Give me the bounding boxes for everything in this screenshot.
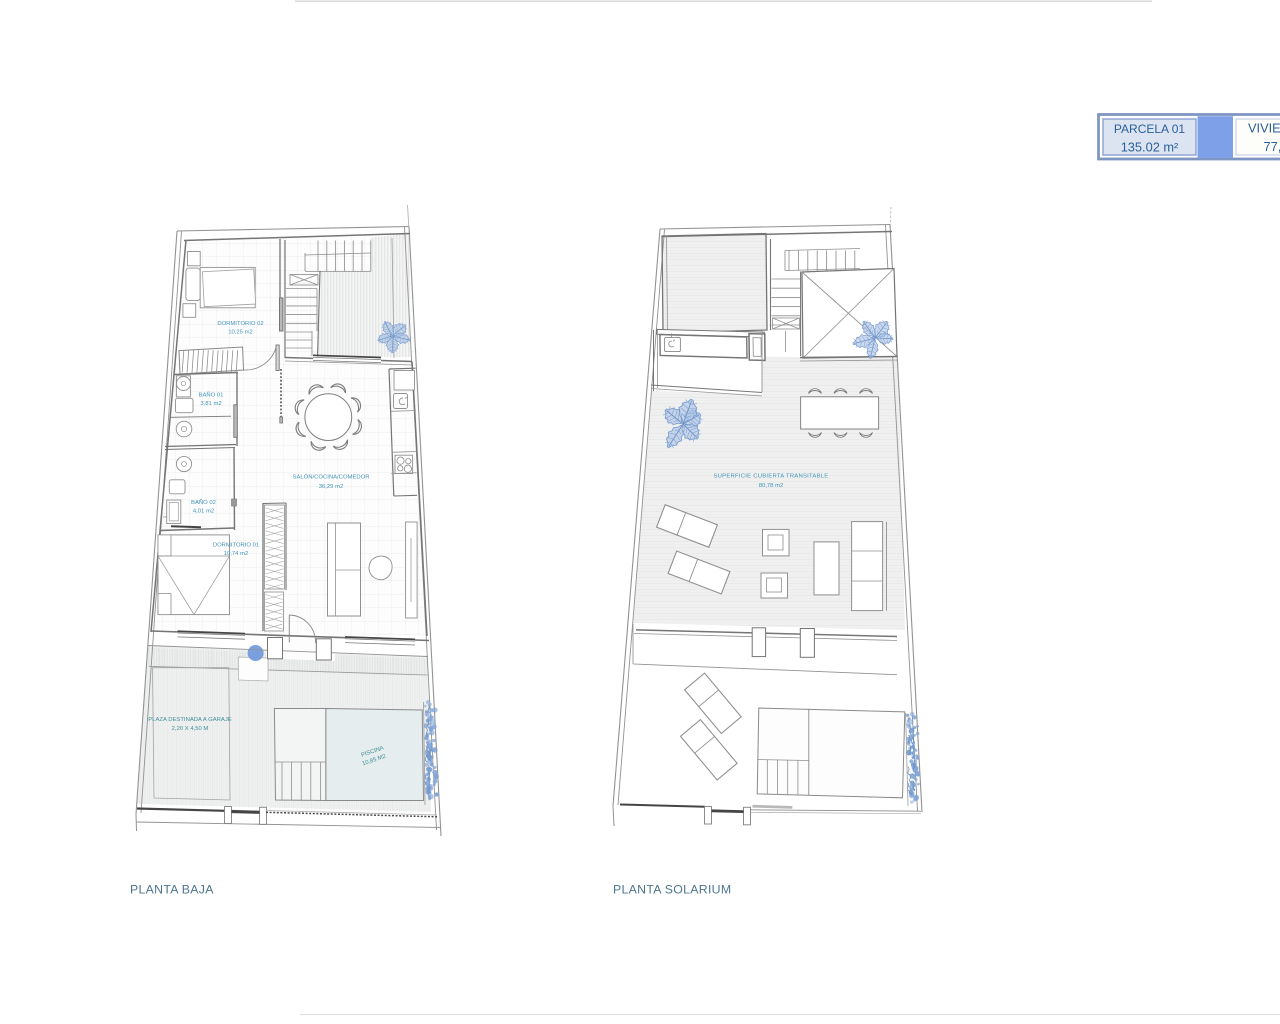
svg-text:PLANTA BAJA: PLANTA BAJA: [130, 883, 214, 897]
svg-text:PARCELA 01: PARCELA 01: [1114, 122, 1185, 136]
svg-text:77,05 m²: 77,05 m²: [1264, 139, 1280, 154]
svg-text:BAÑO 02: BAÑO 02: [191, 499, 216, 506]
svg-text:PLAZA DESTINADA A GARAJE: PLAZA DESTINADA A GARAJE: [148, 717, 232, 723]
svg-text:135.02 m²: 135.02 m²: [1121, 140, 1179, 155]
svg-text:PLANTA SOLARIUM: PLANTA SOLARIUM: [613, 883, 731, 897]
svg-text:DORMITORIO 01: DORMITORIO 01: [213, 543, 259, 549]
svg-text:2,20 X 4,50 M: 2,20 X 4,50 M: [172, 726, 209, 732]
svg-text:3,81 m2: 3,81 m2: [200, 401, 221, 407]
svg-text:DORMITORIO 02: DORMITORIO 02: [217, 321, 263, 327]
svg-text:SALÓN/COCINA/COMEDOR: SALÓN/COCINA/COMEDOR: [293, 474, 370, 481]
svg-text:SUPERFICIE CUBIERTA TRANSITABL: SUPERFICIE CUBIERTA TRANSITABLE: [713, 474, 828, 480]
svg-text:VIVIENDA: VIVIENDA: [1248, 120, 1280, 135]
svg-text:BAÑO 01: BAÑO 01: [199, 392, 224, 399]
svg-text:10,25 m2: 10,25 m2: [228, 330, 253, 336]
svg-text:36,29 m2: 36,29 m2: [319, 484, 344, 490]
svg-text:10,74 m2: 10,74 m2: [224, 551, 249, 557]
svg-text:4,01 m2: 4,01 m2: [193, 509, 214, 515]
svg-text:80,78 m2: 80,78 m2: [759, 483, 784, 489]
